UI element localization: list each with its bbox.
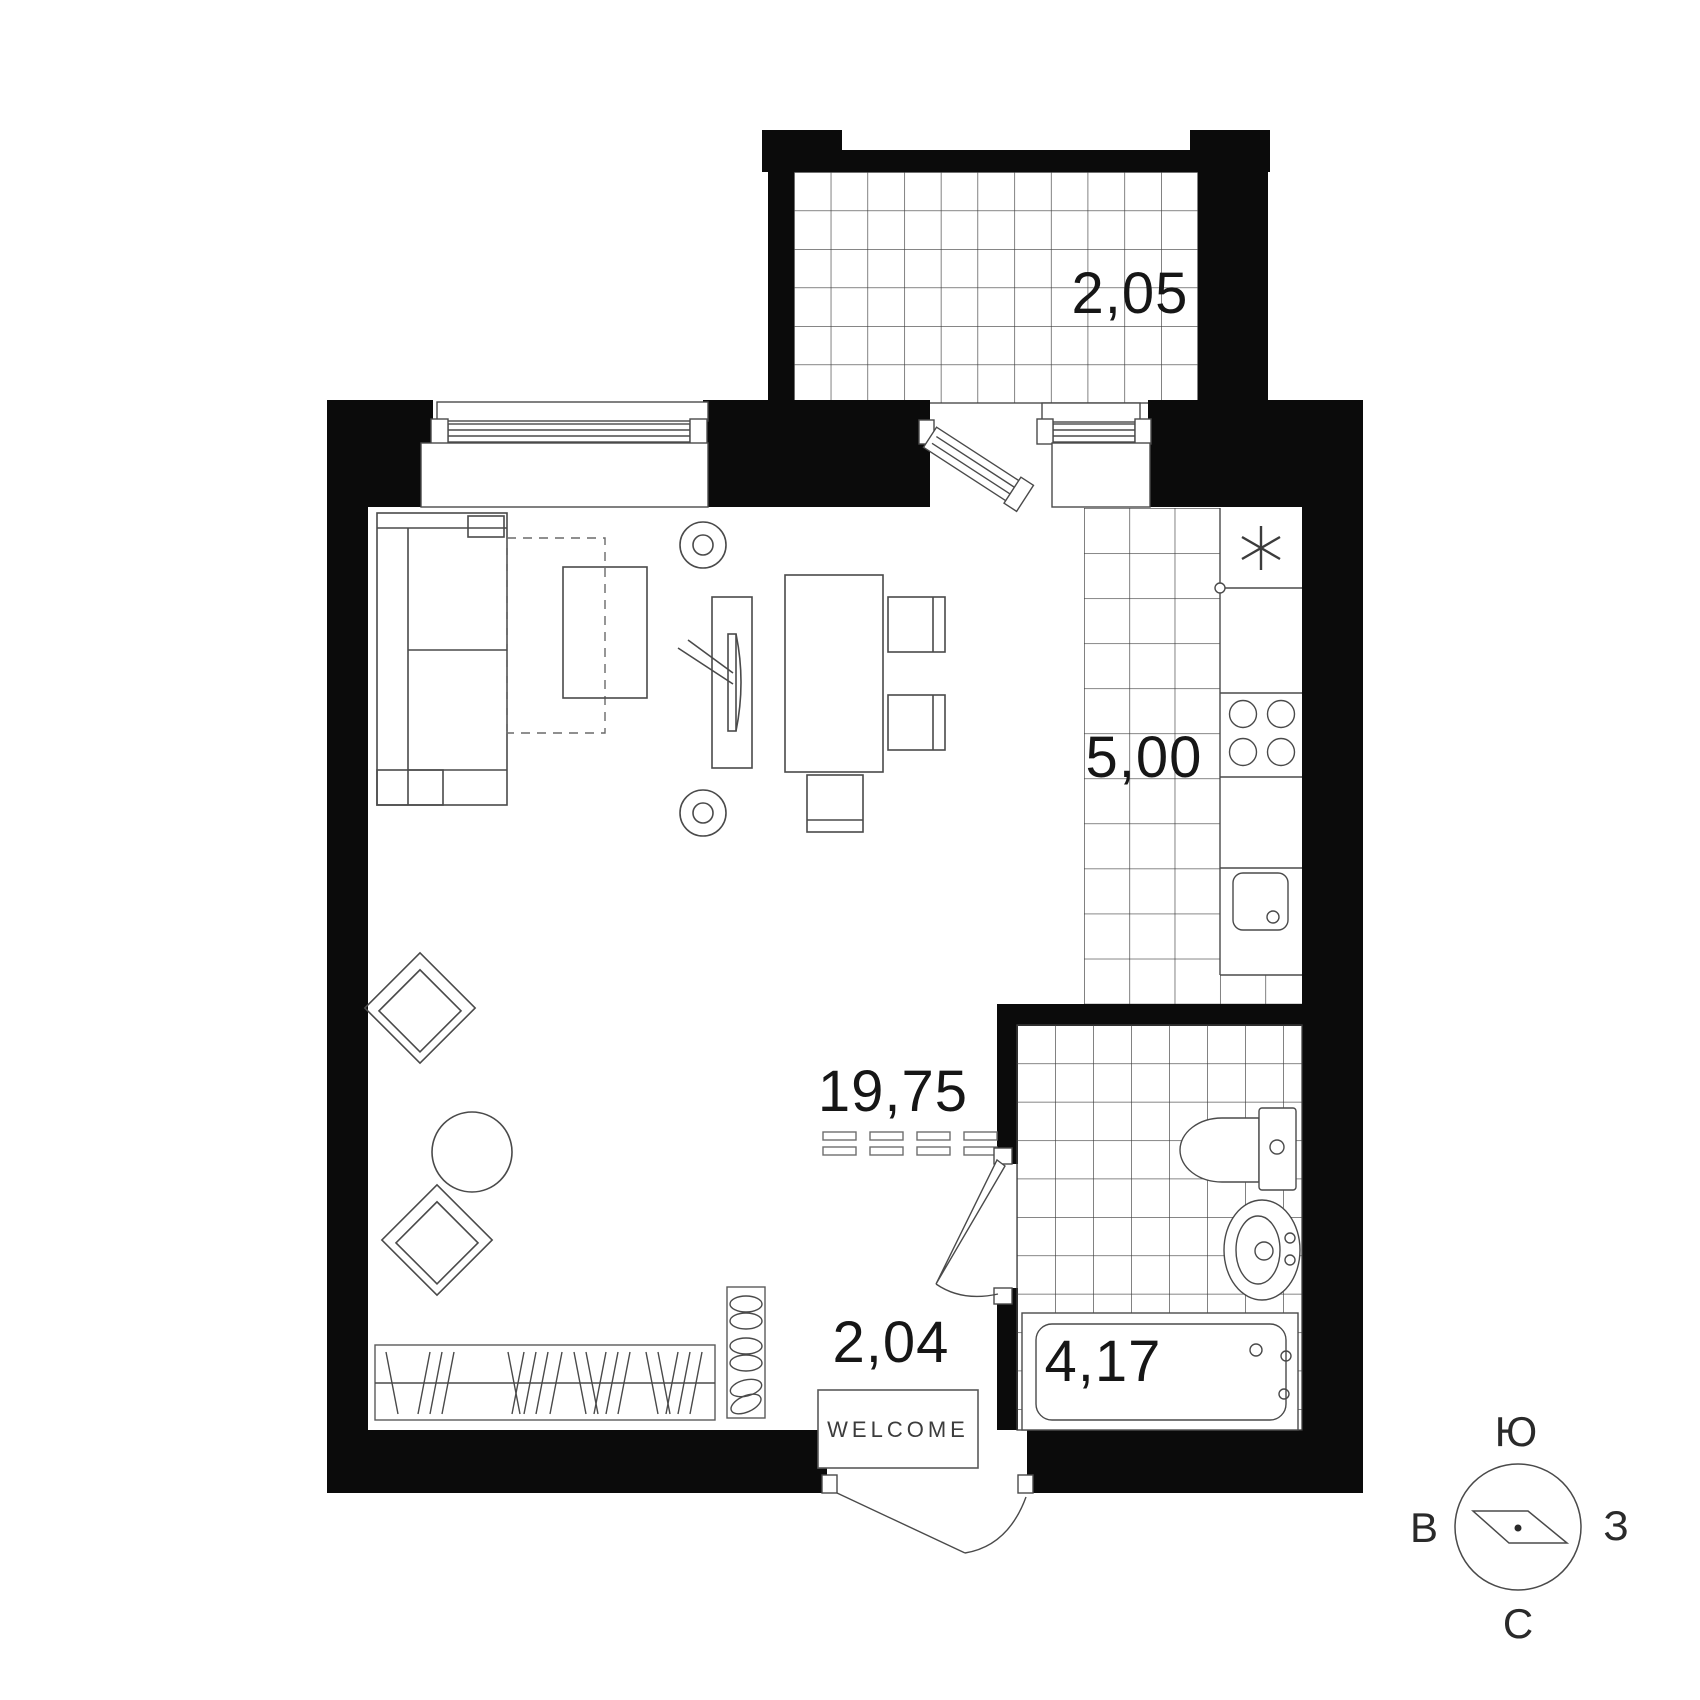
window-outer-sill bbox=[1042, 403, 1140, 422]
living-room-window bbox=[421, 402, 708, 507]
window-end-cap bbox=[1135, 419, 1151, 444]
wall-right bbox=[1302, 400, 1363, 1493]
compass-north-label: С bbox=[1503, 1600, 1533, 1647]
window-inner-ledge bbox=[421, 443, 708, 507]
compass-center-dot bbox=[1515, 1525, 1522, 1532]
balcony: 2,05 bbox=[762, 130, 1270, 403]
wall-top-b bbox=[703, 400, 930, 507]
balcony-area-label: 2,05 bbox=[1072, 261, 1189, 326]
door-hinge-cap bbox=[994, 1288, 1012, 1304]
washbasin-icon bbox=[1224, 1200, 1300, 1300]
window-inner-ledge bbox=[1052, 443, 1150, 507]
wall-bathroom-left-upper bbox=[997, 1004, 1018, 1164]
wall-top-c bbox=[1148, 400, 1363, 507]
wall-bathroom-top bbox=[997, 1004, 1302, 1026]
kitchen-sink-icon bbox=[1233, 873, 1288, 930]
compass-south-label: Ю bbox=[1495, 1408, 1537, 1455]
balcony-right-pillar bbox=[1190, 130, 1270, 172]
wall-bathroom-left-lower bbox=[997, 1288, 1018, 1430]
floor-plan-page: 2,05 bbox=[0, 0, 1700, 1700]
welcome-mat-label: WELCOME bbox=[827, 1417, 969, 1442]
bathroom-area-label: 4,17 bbox=[1045, 1329, 1162, 1394]
wall-left bbox=[327, 400, 368, 1493]
kitchen-tile-strip bbox=[1220, 975, 1302, 1004]
living-room-area-label: 19,75 bbox=[818, 1059, 968, 1124]
window-end-cap bbox=[1037, 419, 1053, 444]
balcony-left-wall bbox=[768, 172, 794, 403]
door-hinge-cap bbox=[822, 1475, 837, 1493]
compass-west-label: З bbox=[1603, 1502, 1628, 1549]
wall-bottom-right bbox=[1027, 1430, 1363, 1493]
compass-east-label: В bbox=[1410, 1504, 1438, 1551]
wall-bottom-left bbox=[327, 1430, 827, 1493]
door-hinge-cap bbox=[1018, 1475, 1033, 1493]
window-frame bbox=[448, 424, 690, 442]
wall-top-a bbox=[327, 400, 433, 507]
hallway-area-label: 2,04 bbox=[833, 1310, 950, 1375]
window-frame bbox=[1053, 424, 1135, 442]
window-outer-sill bbox=[437, 402, 708, 421]
balcony-right-wall bbox=[1198, 172, 1268, 403]
window-end-cap bbox=[431, 419, 448, 444]
floor-plan-drawing: 2,05 bbox=[0, 0, 1700, 1700]
window-end-cap bbox=[690, 419, 707, 444]
kitchen-window bbox=[1037, 403, 1151, 507]
kitchen-area-label: 5,00 bbox=[1086, 725, 1203, 790]
balcony-left-pillar bbox=[762, 130, 842, 172]
